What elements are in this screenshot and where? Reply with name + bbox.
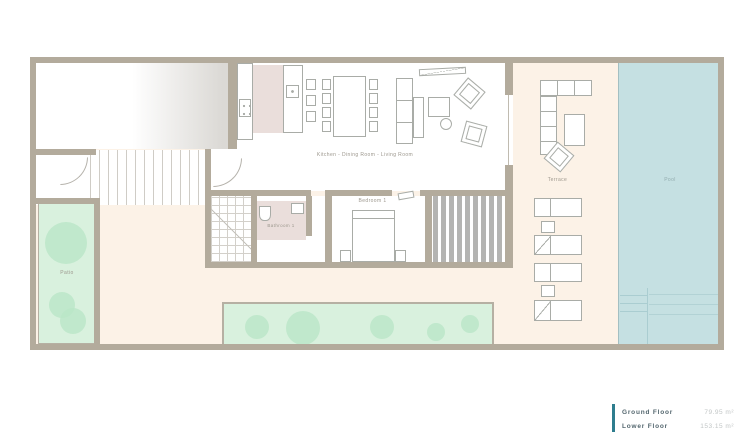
sun-lounger-4 — [534, 300, 582, 321]
island-sink — [286, 85, 299, 98]
bar-stool-2 — [306, 95, 316, 106]
sun-lounger-2 — [534, 235, 582, 255]
dining-chair — [369, 121, 378, 132]
pool-terrace-edge — [618, 63, 619, 344]
pool-water-line — [649, 294, 718, 295]
pool-water-line — [649, 304, 718, 305]
sofa — [396, 78, 413, 144]
patio-right-wall — [94, 204, 100, 344]
outdoor-table — [564, 114, 585, 146]
sliding-glass-door — [505, 95, 513, 165]
driveway-bottom-wall — [36, 149, 96, 155]
bed — [352, 210, 395, 262]
dining-chair — [322, 79, 331, 90]
bar-stool-3 — [306, 111, 316, 122]
bedroom-left-wall — [325, 190, 332, 262]
legend-lower-floor-value: 153.15 m² — [672, 423, 734, 430]
dining-chair — [369, 93, 378, 104]
dining-chair — [322, 121, 331, 132]
dining-table — [333, 76, 366, 137]
interior-staircase — [211, 196, 251, 262]
pouf — [440, 118, 452, 130]
bedroom-right-wall — [425, 190, 432, 262]
sun-lounger-1 — [534, 198, 582, 217]
patio-top-wall — [36, 198, 100, 204]
sun-lounger-3 — [534, 263, 582, 282]
floor-plan-page: Patio Kitchen - Dini — [0, 0, 756, 432]
outer-wall-right — [718, 57, 724, 350]
mid-wall-c — [420, 190, 510, 196]
slatted-deck — [433, 195, 510, 262]
pool-steps — [620, 288, 648, 344]
kitchen-living-label: Kitchen - Dining Room - Living Room — [255, 152, 475, 159]
entry-left-wall — [205, 149, 211, 268]
sofa-chaise — [413, 97, 424, 138]
mid-wall-b — [332, 190, 392, 196]
bathroom-sink — [291, 203, 304, 214]
outdoor-sofa-horizontal — [540, 80, 592, 96]
kitchen-accent-floor — [252, 65, 283, 133]
bathroom-label: Bathroom 1 — [258, 222, 304, 229]
stove — [239, 99, 251, 117]
pool-label: Pool — [650, 177, 690, 184]
pool-water-line — [649, 314, 718, 315]
planter-bush-2 — [286, 311, 320, 345]
terrace-label: Terrace — [530, 177, 585, 184]
bedroom-label: Bedroom 1 — [345, 198, 400, 205]
nightstand-right — [395, 250, 406, 262]
house-right-wall — [505, 63, 513, 268]
planter-bush-1 — [245, 315, 269, 339]
dining-chair — [369, 79, 378, 90]
outer-wall-bottom — [30, 344, 724, 350]
legend-ground-floor-value: 79.95 m² — [672, 409, 734, 416]
toilet — [259, 206, 271, 221]
dining-chair — [322, 107, 331, 118]
lounger-side-table-2 — [541, 285, 555, 297]
planter-bush-3 — [370, 315, 394, 339]
coffee-table — [428, 97, 450, 117]
legend-accent-bar — [612, 404, 615, 432]
exterior-stairs — [90, 150, 205, 205]
mid-wall-a — [211, 190, 311, 196]
bar-stool-1 — [306, 79, 316, 90]
kitchen-island — [283, 65, 303, 133]
planter-bush-4 — [427, 323, 445, 341]
house-bottom-wall — [205, 262, 510, 268]
nightstand-left — [340, 250, 351, 262]
patio-bush-2 — [60, 308, 86, 334]
bathroom-right-wall — [306, 196, 312, 236]
lounger-side-table-1 — [541, 221, 555, 233]
outer-wall-top — [30, 57, 724, 63]
kitchen-left-wall — [228, 63, 237, 149]
stair-right-wall — [251, 190, 257, 262]
driveway-area — [36, 63, 228, 149]
dining-chair — [322, 93, 331, 104]
patio-label: Patio — [41, 270, 93, 277]
dining-chair — [369, 107, 378, 118]
planter-bush-5 — [461, 315, 479, 333]
patio-tree-large — [45, 222, 87, 264]
